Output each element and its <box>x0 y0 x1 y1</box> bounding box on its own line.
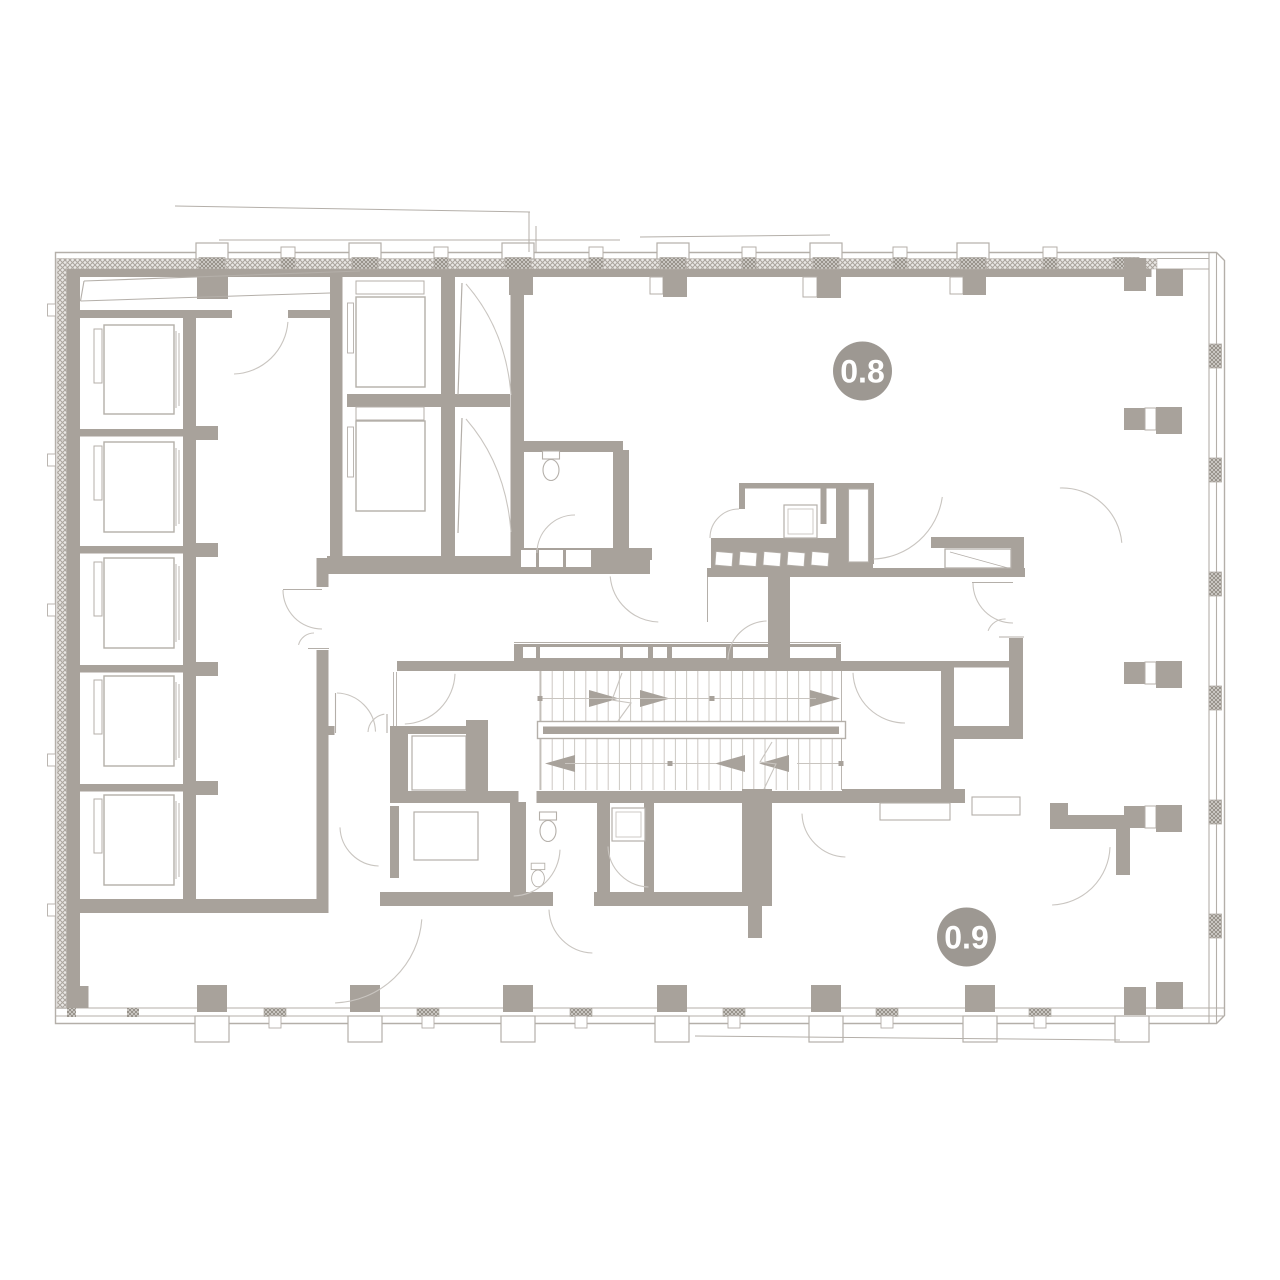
svg-text:0.9: 0.9 <box>944 920 988 956</box>
svg-text:0.8: 0.8 <box>840 354 884 390</box>
